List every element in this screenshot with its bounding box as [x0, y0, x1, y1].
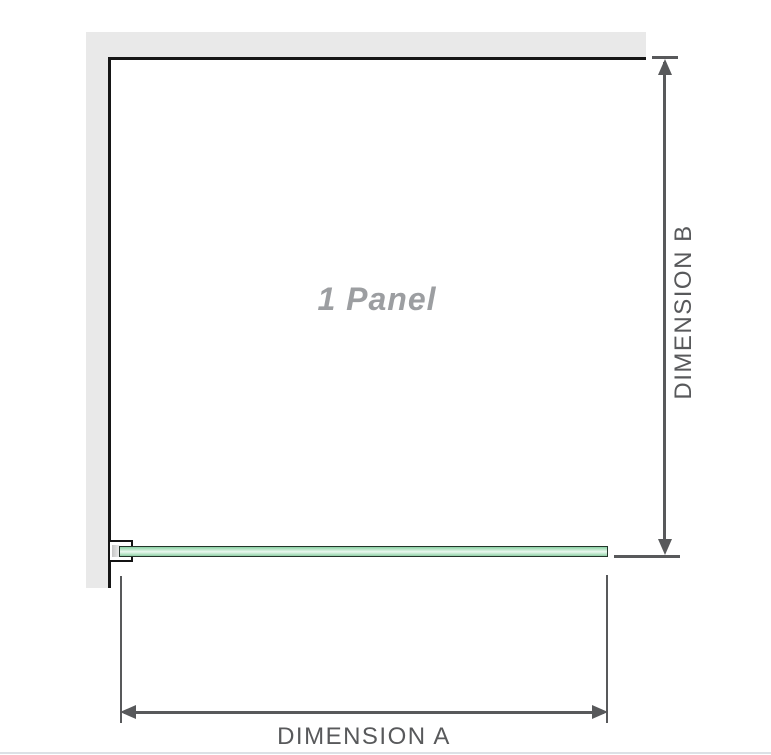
image-bottom-border: [0, 752, 771, 754]
arrow-up-icon: [658, 59, 672, 75]
arrow-right-icon: [592, 705, 608, 719]
dimension-a-right-extension: [606, 575, 608, 723]
glass-panel-bar: [119, 546, 608, 557]
dimension-b-bottom-tick: [614, 555, 680, 558]
dimension-a-label: DIMENSION A: [277, 723, 451, 751]
panel-label: 1 Panel: [108, 281, 646, 318]
dimension-a-line: [124, 711, 604, 714]
arrow-down-icon: [658, 539, 672, 555]
wall-top-surface: [86, 32, 646, 57]
shower-panel-diagram: 1 Panel DIMENSION B DIMENSION A: [0, 0, 771, 755]
dimension-a-left-extension: [120, 576, 122, 723]
arrow-left-icon: [120, 705, 136, 719]
panel-top-edge: [108, 57, 646, 60]
panel-left-edge: [108, 57, 111, 588]
wall-left-surface: [86, 32, 108, 588]
dimension-b-line: [663, 62, 666, 550]
dimension-b-label: DIMENSION B: [670, 224, 698, 399]
